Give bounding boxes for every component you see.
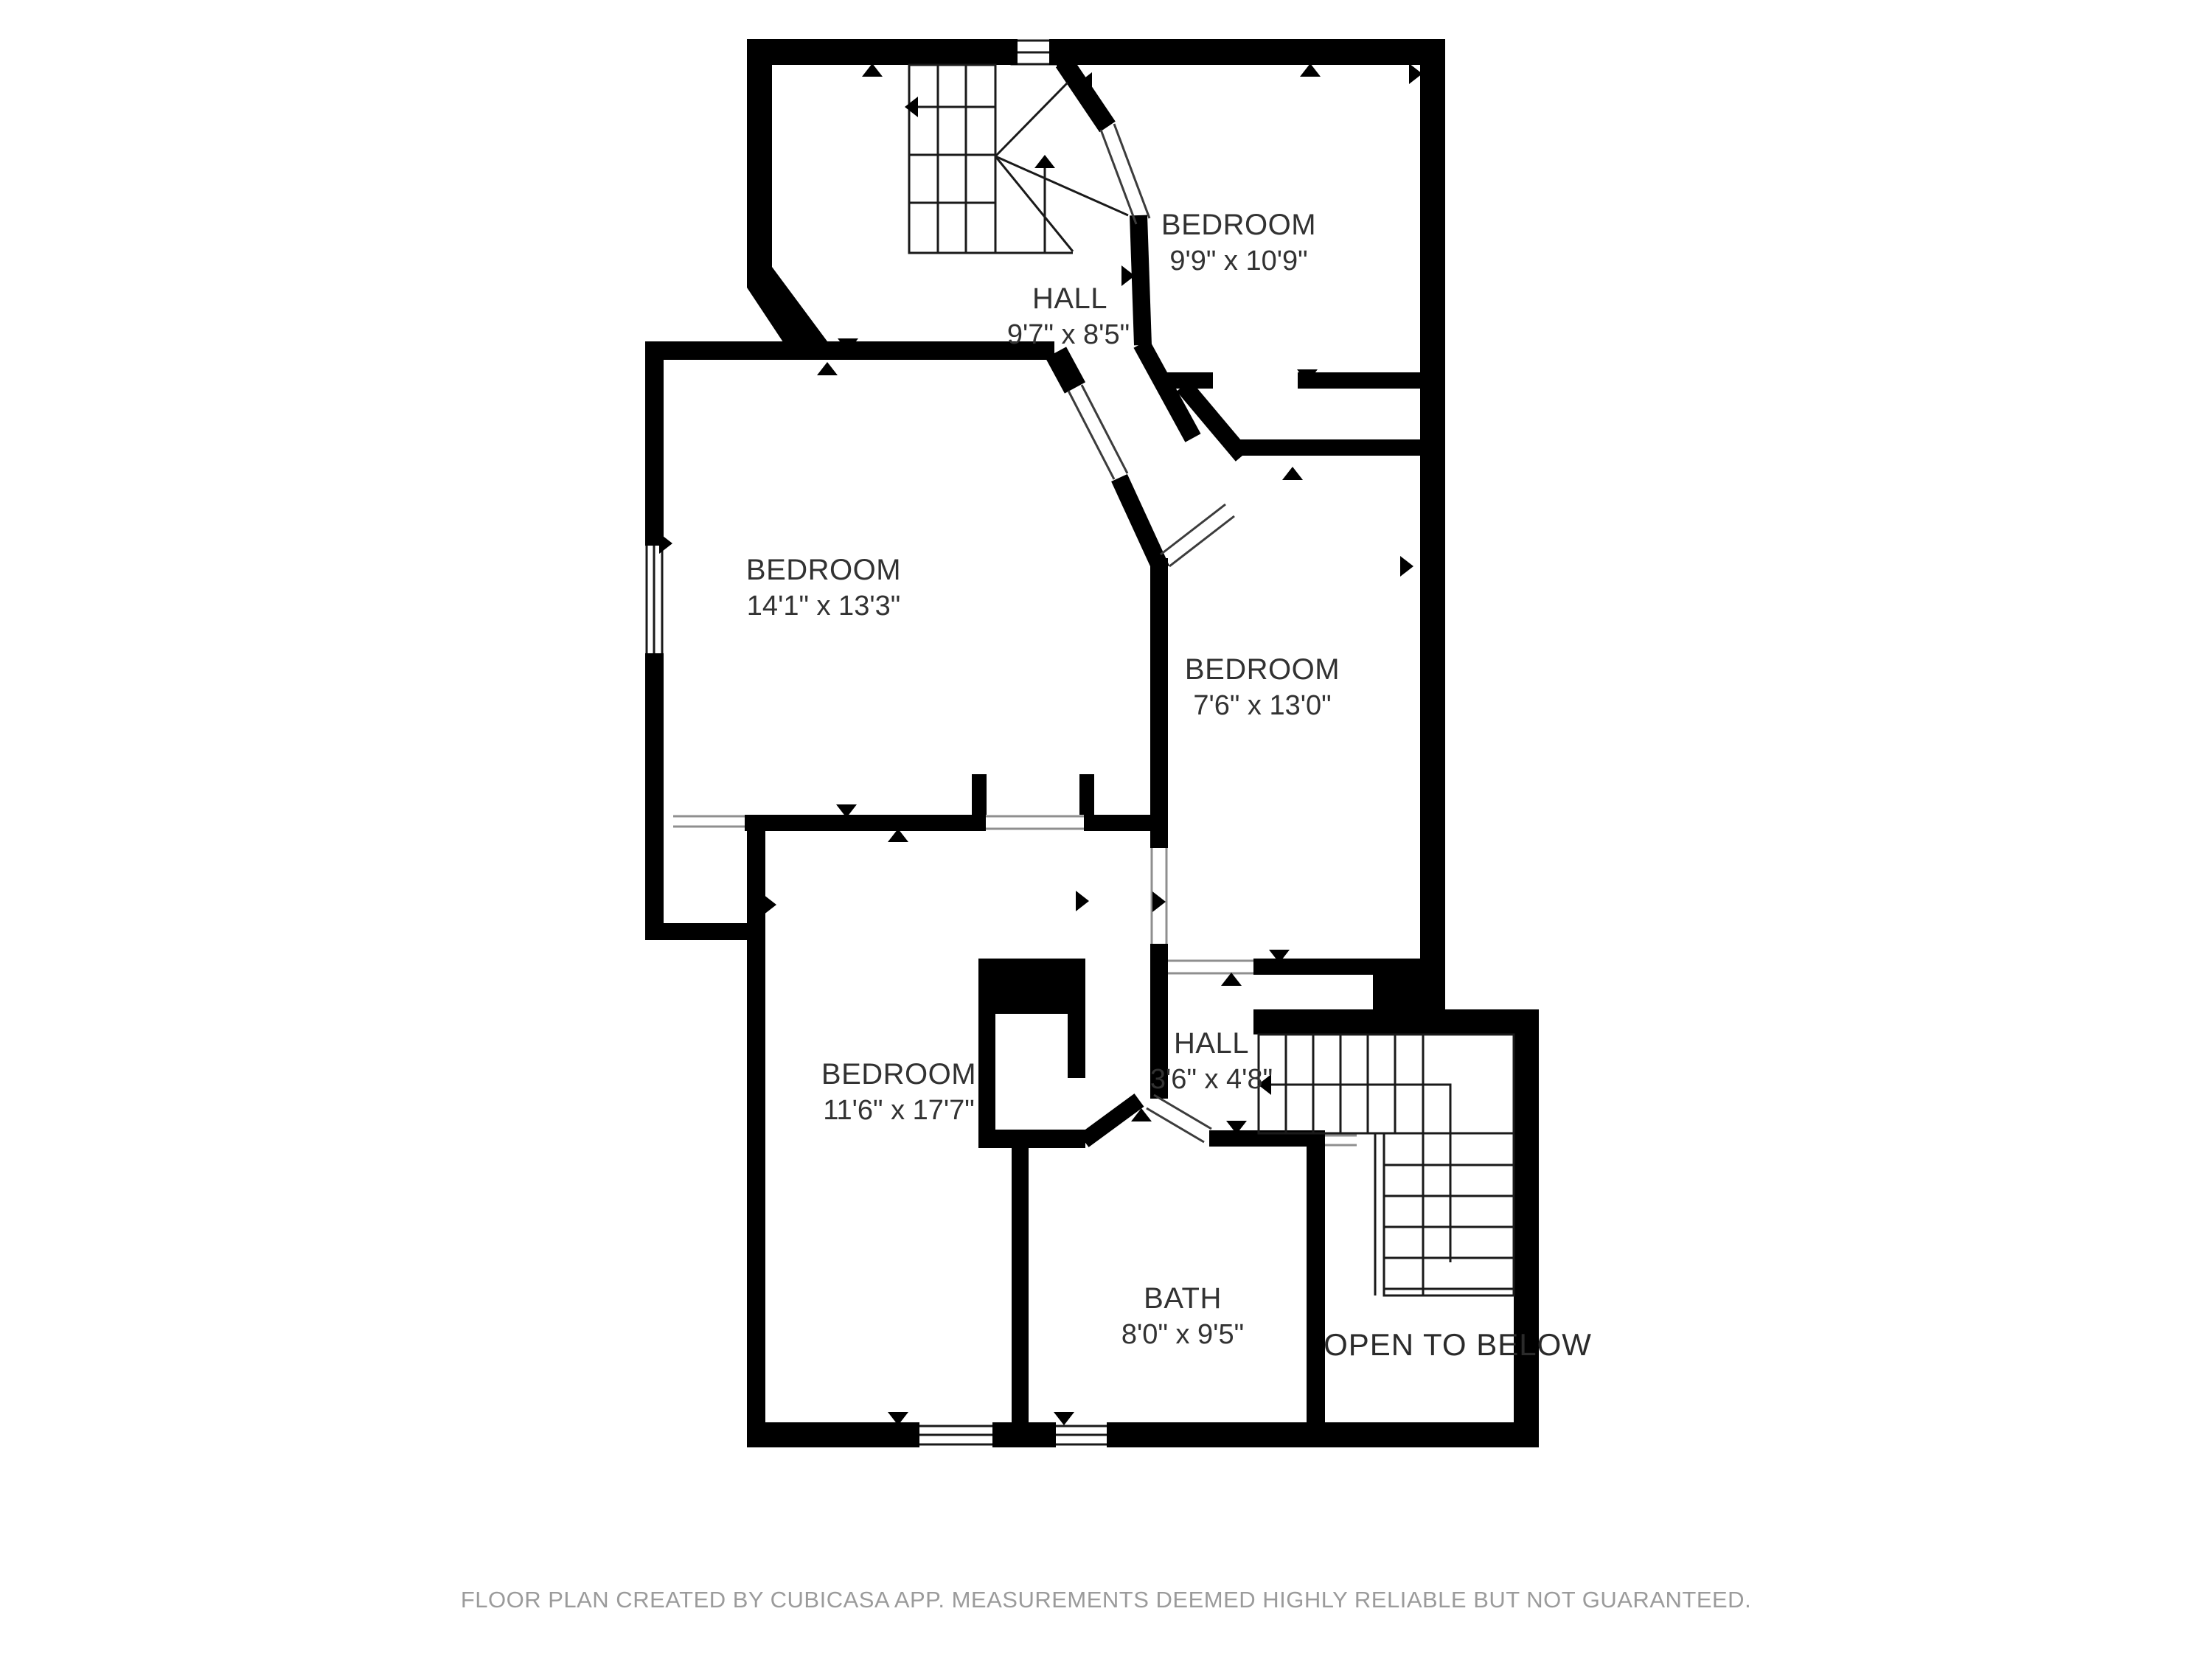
- door-marker-icon: [817, 362, 838, 375]
- floor-plan-canvas: HALL 9'7" x 8'5" BEDROOM 9'9" x 10'9" BE…: [0, 0, 2212, 1659]
- room-label-hall-upper: HALL: [1032, 282, 1107, 315]
- room-dims-bedroom-top-right: 9'9" x 10'9": [1169, 246, 1307, 276]
- room-label-bedroom-mid-right: BEDROOM: [1185, 653, 1340, 686]
- door-marker-icon: [1152, 891, 1166, 912]
- room-label-hall-lower: HALL: [1174, 1027, 1249, 1060]
- room-dims-bedroom-mid-right: 7'6" x 13'0": [1193, 690, 1331, 721]
- stairs-up-arrow-icon: [905, 97, 1055, 208]
- room-label-bedroom-top-right: BEDROOM: [1161, 209, 1316, 241]
- open-to-below-label: OPEN TO BELOW: [1324, 1327, 1592, 1362]
- window-bottom-bath: [1047, 1419, 1116, 1451]
- room-dims-hall-lower: 3'6" x 4'8": [1150, 1064, 1273, 1095]
- window-left: [642, 537, 667, 662]
- door-marker-icon: [1300, 63, 1321, 77]
- door-marker-icon: [862, 63, 883, 77]
- room-dims-bedroom-mid-left: 14'1" x 13'3": [747, 591, 900, 622]
- door-marker-icon: [1282, 467, 1303, 480]
- door-marker-icon: [1076, 891, 1089, 911]
- door-marker-icon: [1221, 973, 1242, 986]
- window-bottom-left: [911, 1419, 1001, 1451]
- footer-disclaimer: FLOOR PLAN CREATED BY CUBICASA APP. MEAS…: [461, 1587, 1751, 1613]
- exterior-walls: [645, 39, 1539, 1447]
- room-label-bedroom-bottom-left: BEDROOM: [821, 1058, 976, 1091]
- room-dims-bath: 8'0" x 9'5": [1121, 1319, 1244, 1350]
- floor-plan-page: HALL 9'7" x 8'5" BEDROOM 9'9" x 10'9" BE…: [0, 0, 2212, 1659]
- lower-stairs: [1258, 1034, 1514, 1295]
- room-dims-bedroom-bottom-left: 11'6" x 17'7": [823, 1095, 975, 1126]
- door-marker-icon: [1400, 556, 1413, 577]
- room-dims-hall-upper: 9'7" x 8'5": [1007, 319, 1130, 350]
- window-top: [1010, 37, 1057, 67]
- door-marker-icon: [763, 894, 776, 915]
- room-label-bath: BATH: [1144, 1282, 1222, 1315]
- room-label-bedroom-mid-left: BEDROOM: [746, 554, 901, 586]
- interior-walls: [745, 372, 1425, 1447]
